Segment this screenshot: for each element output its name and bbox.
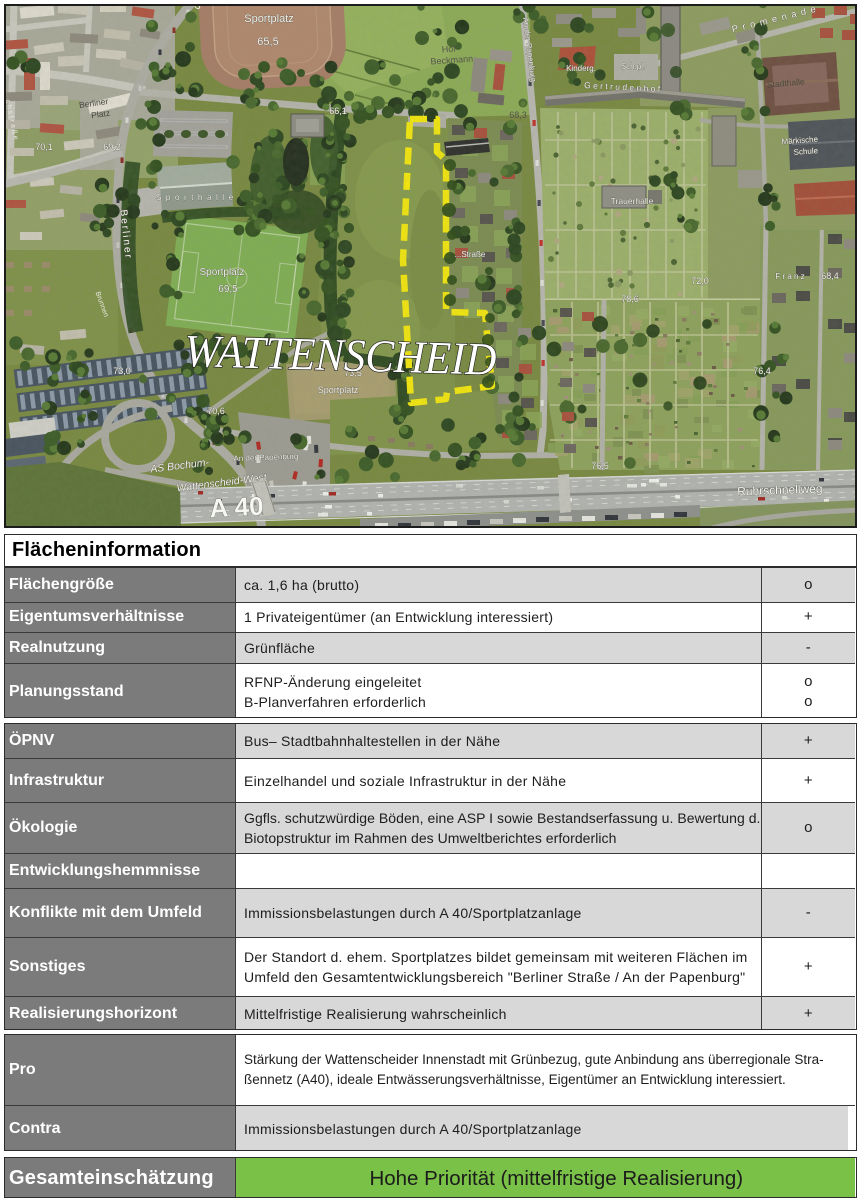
svg-text:S p o r t h a l l e: S p o r t h a l l e [156, 192, 235, 202]
svg-text:Trauerhalle: Trauerhalle [611, 196, 654, 206]
svg-text:Sch.pl.: Sch.pl. [621, 62, 645, 71]
svg-text:68,3: 68,3 [509, 110, 527, 120]
svg-text:Hof: Hof [441, 43, 456, 54]
svg-text:WATTENSCHEID: WATTENSCHEID [184, 325, 497, 385]
svg-text:Ruhrschnellweg: Ruhrschnellweg [737, 482, 823, 499]
svg-text:73,0: 73,0 [113, 366, 131, 376]
svg-text:66,1: 66,1 [329, 106, 347, 116]
svg-text:69,5: 69,5 [218, 284, 238, 295]
svg-text:...Straße: ...Straße [455, 250, 486, 259]
svg-text:A 40: A 40 [209, 491, 264, 524]
svg-text:70,6: 70,6 [207, 406, 225, 416]
svg-text:Kinderg.: Kinderg. [566, 64, 596, 73]
svg-text:76,4: 76,4 [753, 366, 771, 376]
svg-text:Schule: Schule [793, 146, 819, 157]
svg-text:Sportplatz: Sportplatz [199, 267, 244, 278]
svg-text:78,6: 78,6 [621, 294, 639, 304]
svg-text:Sportplatz: Sportplatz [318, 385, 359, 395]
svg-text:76,5: 76,5 [591, 461, 609, 471]
svg-text:69,2: 69,2 [103, 142, 121, 152]
svg-text:65,5: 65,5 [257, 36, 278, 48]
svg-text:68,4: 68,4 [821, 271, 839, 281]
svg-text:Sportplatz: Sportplatz [244, 13, 294, 25]
svg-text:72,0: 72,0 [691, 276, 709, 286]
svg-text:70,1: 70,1 [35, 142, 53, 152]
svg-text:F r a n z: F r a n z [775, 272, 804, 281]
